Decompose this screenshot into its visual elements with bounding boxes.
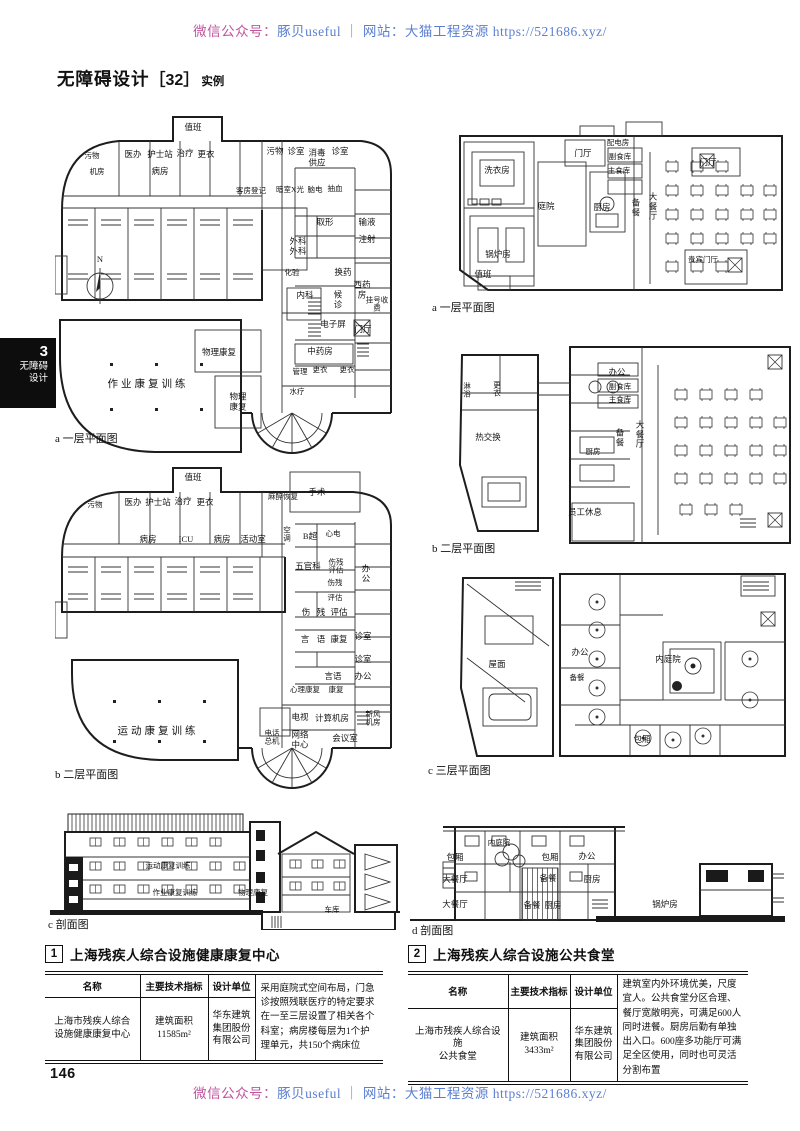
- room-label: 锅炉房: [485, 250, 511, 260]
- caption-plan-b-right: b 二层平面图: [432, 540, 495, 556]
- room-label: 医办: [124, 498, 141, 508]
- room-label: 残: [317, 608, 326, 618]
- room-label: 病房: [139, 535, 156, 545]
- title-main: 无障碍设计: [57, 69, 150, 89]
- room-label: 大餐厅: [442, 900, 468, 910]
- room-label: 厨房: [544, 901, 561, 911]
- project-description: 采用庭院式空间布局，门急诊按照残联医疗的特定要求在一至三层设置了相关各个科室；病…: [255, 973, 383, 1062]
- room-label: 评估: [330, 608, 347, 618]
- room-label: 屋面: [488, 660, 505, 670]
- room-label: 评估: [328, 594, 343, 602]
- room-label: 包厢: [541, 853, 558, 863]
- room-label: 抽血: [328, 185, 343, 193]
- watermark-header: 微信公众号：豚贝useful ｜ 网站：大猫工程资源 https://52168…: [0, 20, 800, 40]
- table-2-number-box: 2: [408, 945, 426, 963]
- room-label: 伤残: [328, 579, 343, 587]
- col-header-name: 名称: [45, 973, 140, 998]
- caption-plan-a-right: a 一层平面图: [432, 299, 495, 315]
- table-1: 名称 主要技术指标 设计单位 采用庭院式空间布局，门急诊按照残联医疗的特定要求在…: [45, 971, 383, 1064]
- room-label: 空 调: [283, 527, 291, 544]
- room-label: 物理康复: [202, 348, 236, 358]
- col-header-designer: 设计单位: [570, 973, 617, 1008]
- room-label: 会议室: [332, 734, 358, 744]
- room-label: 庭院: [537, 202, 554, 212]
- room-label: 外科: [289, 247, 306, 257]
- room-label: 大餐厅: [442, 875, 468, 885]
- watermark-footer: 微信公众号：豚贝useful ｜ 网站：大猫工程资源 https://52168…: [0, 1082, 800, 1102]
- room-label: 消毒 供应: [308, 148, 325, 167]
- room-label: 言语: [324, 672, 341, 682]
- room-label: 取形: [316, 218, 333, 228]
- room-label: 值班: [184, 123, 201, 133]
- room-label: 护士站: [147, 150, 173, 160]
- room-label: 主食库: [609, 396, 632, 404]
- room-label: 更衣: [196, 498, 213, 508]
- section-c-drawing: 运动康复训练作业康复训练物理康复车库: [50, 802, 400, 930]
- floor-plan-c-right: 屋面办公备餐内庭院包厢: [425, 560, 795, 765]
- room-label: 包厢: [446, 853, 463, 863]
- room-label: 值班: [474, 270, 491, 280]
- book-page: 微信公众号：豚贝useful ｜ 网站：大猫工程资源 https://52168…: [0, 0, 800, 1131]
- caption-section-d: d 剖面图: [412, 922, 453, 938]
- room-label: N: [97, 255, 103, 265]
- table-row: 名称 主要技术指标 设计单位 采用庭院式空间布局，门急诊按照残联医疗的特定要求在…: [45, 973, 383, 998]
- chapter-label-line1: 无障碍: [0, 361, 48, 373]
- room-label: 办公: [578, 852, 595, 862]
- spec-table-1: 1 上海残疾人综合设施健康康复中心 名称 主要技术指标 设计单位 采用庭院式空间…: [45, 944, 383, 1064]
- room-label: 手术: [308, 488, 325, 498]
- floor-plan-a-right: 洗衣房庭院门厅配电房副食库主食库厨房备 餐大 餐 厅门厅贵宾门厅锅炉房值班: [430, 112, 795, 304]
- room-label: 淋 浴: [463, 383, 471, 400]
- room-label: 客房登记: [236, 187, 266, 195]
- room-label: 备餐: [570, 674, 585, 682]
- room-label: 更衣: [197, 150, 214, 160]
- room-label: 心电: [326, 530, 341, 538]
- wechat-name: 豚贝useful: [277, 24, 341, 39]
- room-label: 配电房: [607, 139, 630, 147]
- room-label: 门厅: [574, 149, 591, 159]
- floor-plan-b-right: 淋 浴更 衣热交换办公副食库主食库备 餐大 餐 厅厨房员工休息: [430, 335, 800, 547]
- project-designer: 华东建筑 集团股份 有限公司: [570, 1008, 617, 1083]
- room-label: 康复: [329, 686, 344, 694]
- room-label: 门厅: [699, 158, 716, 168]
- room-label: 化验: [285, 269, 300, 277]
- room-label: 治疗: [176, 149, 193, 159]
- room-label: 中药房: [307, 347, 333, 357]
- room-label: 大 餐 厅: [649, 193, 658, 222]
- wechat-name: 豚贝useful: [277, 1086, 341, 1101]
- caption-plan-a-left: a 一层平面图: [55, 430, 118, 446]
- room-label: 污物: [88, 501, 103, 509]
- room-label: 备 餐: [632, 198, 641, 217]
- room-label: ICU: [179, 535, 194, 545]
- room-label: 运动康复训练: [146, 862, 191, 870]
- table-2: 名称 主要技术指标 设计单位 建筑室内外环境优美，尺度宜人。公共食堂分区合理、餐…: [408, 971, 748, 1085]
- room-label: 运动康复训练: [118, 726, 199, 738]
- room-label: 换药: [334, 268, 351, 278]
- col-header-designer: 设计单位: [208, 973, 255, 998]
- room-label: 电话 总机: [265, 730, 280, 747]
- room-label: 伤: [302, 608, 311, 618]
- room-label: 内庭院: [488, 839, 511, 847]
- room-label: 五官科: [295, 562, 321, 572]
- table-row: 名称 主要技术指标 设计单位 建筑室内外环境优美，尺度宜人。公共食堂分区合理、餐…: [408, 973, 748, 1008]
- room-label: 电视: [291, 713, 308, 723]
- room-label: 副食库: [609, 153, 632, 161]
- room-label: 办 公: [362, 564, 371, 583]
- room-label: 门厅: [354, 325, 371, 335]
- room-label: 更衣: [340, 366, 355, 374]
- room-label: 主食库: [608, 167, 631, 175]
- room-label: 车库: [325, 906, 340, 914]
- room-label: 病房: [151, 167, 168, 177]
- col-header-name: 名称: [408, 973, 508, 1008]
- room-label: 水疗: [290, 388, 305, 396]
- room-label: 内科: [296, 291, 313, 301]
- title-suffix: 实例: [201, 76, 224, 88]
- room-label: 言: [301, 635, 310, 645]
- room-label: 管理: [293, 368, 308, 376]
- chapter-number: 3: [0, 343, 48, 361]
- table-1-header: 1 上海残疾人综合设施健康康复中心: [45, 944, 383, 964]
- room-label: 厨房: [593, 203, 610, 213]
- title-number: ［32］: [150, 72, 200, 89]
- page-title: 无障碍设计［32］实例: [57, 66, 224, 91]
- room-label: 活动室: [240, 535, 266, 545]
- room-label: 脑电: [308, 186, 323, 194]
- room-label: 诊室: [331, 147, 348, 157]
- room-label: 洗衣房: [484, 166, 510, 176]
- room-label: 康复: [330, 635, 347, 645]
- room-label: 输液: [358, 218, 375, 228]
- project-description: 建筑室内外环境优美，尺度宜人。公共食堂分区合理、餐厅宽敞明亮，可满足600人同时…: [617, 973, 748, 1083]
- chapter-tab: 3 无障碍 设计: [0, 338, 56, 408]
- spec-table-2: 2 上海残疾人综合设施公共食堂 名称 主要技术指标 设计单位 建筑室内外环境优美…: [408, 944, 748, 1085]
- table-1-number-box: 1: [45, 945, 63, 963]
- room-label: 大 餐 厅: [636, 421, 645, 450]
- floor-plan-a-left: 值班污物机房医办护士站治疗更衣病房污物诊室消毒 供应诊室客房登记暗室X光脑电抽血…: [55, 108, 400, 458]
- room-label: 值班: [184, 473, 201, 483]
- project-name: 上海市残疾人综合 设施健康康复中心: [45, 998, 140, 1063]
- caption-plan-c-right: c 三层平面图: [428, 762, 491, 778]
- wechat-label: 微信公众号：: [193, 24, 277, 39]
- room-label: 心理康复: [290, 686, 320, 694]
- project-tech-specs: 建筑面积 3433m²: [508, 1008, 570, 1083]
- table-2-header: 2 上海残疾人综合设施公共食堂: [408, 944, 748, 964]
- room-label: 备 餐: [616, 428, 625, 447]
- room-label: 作业康复训练: [153, 889, 198, 897]
- room-label: B超: [303, 532, 317, 542]
- room-label: 诊室: [354, 655, 371, 665]
- room-label: 物理康复: [238, 889, 268, 897]
- room-label: 暗室X光: [276, 186, 304, 194]
- room-label: 语: [317, 635, 326, 645]
- room-label: 挂号收费: [366, 297, 389, 314]
- project-designer: 华东建筑 集团股份 有限公司: [208, 998, 255, 1063]
- room-label: 护士站: [145, 498, 171, 508]
- room-label: 办公: [571, 648, 588, 658]
- project-name: 上海市残疾人综合设施 公共食堂: [408, 1008, 508, 1083]
- room-label: 伤残 评估: [329, 559, 344, 576]
- col-header-tech: 主要技术指标: [508, 973, 570, 1008]
- wechat-label: 微信公众号：: [193, 1086, 277, 1101]
- room-label: 更衣: [313, 366, 328, 374]
- room-label: 医办: [124, 150, 141, 160]
- table-2-title: 上海残疾人综合设施公共食堂: [433, 944, 615, 964]
- room-label: 候 诊: [334, 290, 343, 309]
- page-number: 146: [50, 1066, 76, 1082]
- room-label: 厨房: [586, 448, 601, 456]
- room-label: 电子屏: [320, 320, 346, 330]
- room-label: 麻醉恢复: [268, 493, 298, 501]
- room-label: 新风 机房: [366, 711, 381, 728]
- room-label: 备餐: [539, 874, 556, 884]
- room-label: 机房: [90, 168, 105, 176]
- watermark-divider: ｜: [345, 1086, 359, 1101]
- room-label: 副食库: [609, 383, 632, 391]
- room-label: 治疗: [174, 497, 191, 507]
- chapter-label-line2: 设计: [0, 373, 48, 385]
- room-label: 厨房: [583, 875, 600, 885]
- project-tech-specs: 建筑面积 11585m²: [140, 998, 208, 1063]
- floor-plan-b-left: 值班污物医办护士站治疗更衣麻醉恢复手术病房ICU病房活动室空 调B超心电五官科伤…: [55, 462, 400, 792]
- room-label: 包厢: [633, 735, 650, 745]
- room-label: 网络 中心: [291, 730, 308, 749]
- room-label: 锅炉房: [652, 900, 678, 910]
- room-label: 备餐: [523, 901, 540, 911]
- room-label: 贵宾门厅: [688, 256, 718, 264]
- room-label: 内庭院: [655, 655, 681, 665]
- site-link: 网站：大猫工程资源 https://521686.xyz/: [363, 24, 607, 39]
- site-link: 网站：大猫工程资源 https://521686.xyz/: [363, 1086, 607, 1101]
- room-label: 诊室: [287, 147, 304, 157]
- room-label: 计算机房: [315, 714, 349, 724]
- watermark-divider: ｜: [345, 24, 359, 39]
- room-label: 污物: [85, 152, 100, 160]
- room-label: 诊室: [354, 632, 371, 642]
- section-d-drawing: 内庭院包厢包厢办公大餐厅备餐厨房大餐厅备餐厨房锅炉房: [410, 802, 785, 935]
- room-label: 办公: [608, 368, 625, 378]
- room-label: 热交换: [475, 433, 501, 443]
- room-label: 病房: [213, 535, 230, 545]
- room-label: 更 衣: [493, 382, 501, 399]
- room-label: 办公: [354, 672, 371, 682]
- room-label: 员工休息: [568, 508, 602, 518]
- room-label: 物理 康复: [229, 392, 246, 411]
- caption-plan-b-left: b 二层平面图: [55, 766, 118, 782]
- room-label: 注射: [358, 235, 375, 245]
- table-1-title: 上海残疾人综合设施健康康复中心: [70, 944, 280, 964]
- room-label: 污物: [266, 147, 283, 157]
- col-header-tech: 主要技术指标: [140, 973, 208, 998]
- caption-section-c: c 剖面图: [48, 916, 89, 932]
- room-label: 作业康复训练: [108, 379, 189, 391]
